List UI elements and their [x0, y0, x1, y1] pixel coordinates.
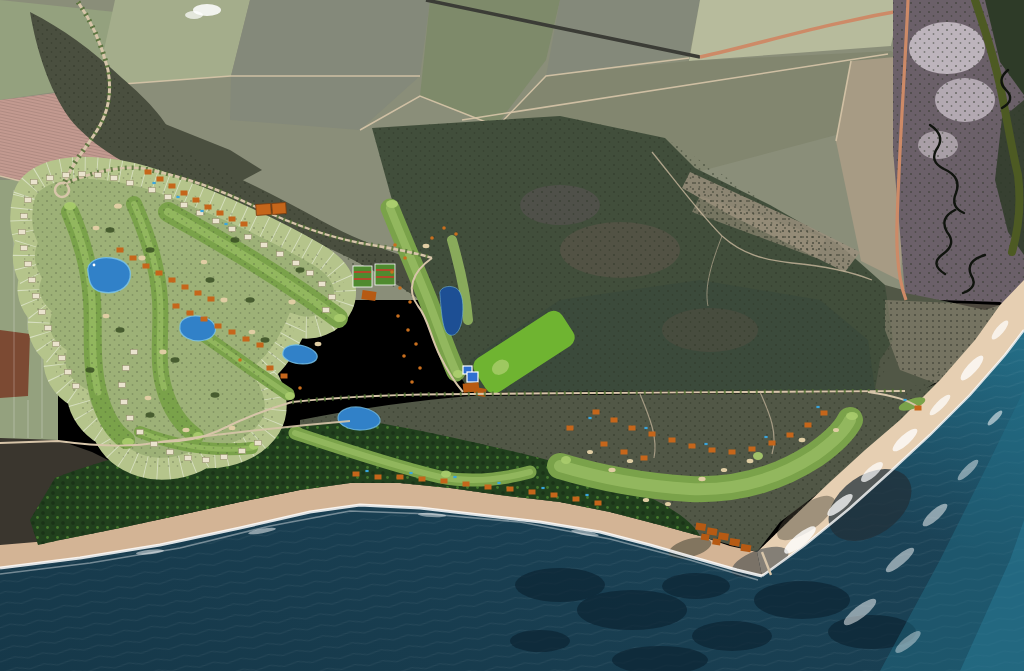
house [255, 441, 262, 446]
villa [641, 456, 648, 461]
villa [243, 337, 250, 342]
plowed-field-rust [0, 330, 30, 398]
house [73, 384, 80, 389]
house [127, 181, 134, 186]
field [96, 0, 250, 86]
resort-building [256, 203, 272, 215]
house [95, 173, 102, 178]
house [21, 246, 28, 251]
villa [193, 198, 200, 203]
house [121, 400, 128, 405]
lake [283, 345, 318, 364]
house [203, 458, 210, 463]
villa [169, 278, 176, 283]
house [33, 294, 40, 299]
pool [816, 406, 819, 408]
plot-rows [352, 252, 396, 263]
house [261, 243, 268, 248]
house [123, 366, 130, 371]
villa [595, 501, 602, 506]
house [119, 383, 126, 388]
house [19, 230, 26, 235]
pool [497, 482, 500, 484]
house [293, 261, 300, 266]
villa [375, 475, 382, 480]
villa [201, 317, 208, 322]
villa [143, 264, 150, 269]
house [307, 271, 314, 276]
resort-building [272, 203, 287, 215]
villa [601, 442, 608, 447]
pool [644, 427, 647, 429]
house [63, 173, 70, 178]
pool [764, 436, 767, 438]
villa [441, 479, 448, 484]
house [229, 227, 236, 232]
villa [205, 205, 212, 210]
villa [649, 432, 656, 437]
house [21, 214, 28, 219]
house [329, 295, 336, 300]
pool [541, 487, 544, 489]
house [213, 219, 220, 224]
house [31, 180, 38, 185]
house [319, 282, 326, 287]
villa [217, 211, 224, 216]
grid-plot [353, 266, 372, 287]
house [29, 278, 36, 283]
house [239, 449, 246, 454]
villa [215, 324, 222, 329]
villa [156, 271, 163, 276]
putting-green [386, 200, 398, 208]
villa [507, 487, 514, 492]
villa [821, 411, 828, 416]
villa [267, 366, 274, 371]
pool [409, 472, 412, 474]
villa [787, 433, 794, 438]
pool [585, 494, 588, 496]
villa [749, 447, 756, 452]
villa [241, 222, 248, 227]
house [53, 342, 60, 347]
villa [669, 438, 676, 443]
villa [729, 450, 736, 455]
aerial-map [0, 0, 1024, 671]
house [323, 308, 330, 313]
house [79, 172, 86, 177]
house [65, 370, 72, 375]
house [25, 198, 32, 203]
estuary [893, 0, 1024, 315]
pool [176, 196, 179, 198]
house [165, 195, 172, 200]
villa [709, 448, 716, 453]
villa [130, 256, 137, 261]
house [25, 262, 32, 267]
villa [169, 184, 176, 189]
villa [529, 490, 536, 495]
pool [224, 223, 227, 225]
house [151, 442, 158, 447]
pool [588, 417, 591, 419]
villa [689, 444, 696, 449]
villa [805, 423, 812, 428]
villa [182, 285, 189, 290]
villa [915, 406, 922, 411]
house [221, 455, 228, 460]
sand-bunker [423, 244, 430, 248]
house [111, 176, 118, 181]
lake [180, 316, 216, 341]
house [45, 326, 52, 331]
villa [397, 475, 404, 480]
villa [181, 191, 188, 196]
putting-green [453, 370, 463, 378]
villa [551, 493, 558, 498]
house [59, 356, 66, 361]
pool [903, 399, 906, 401]
villa [611, 418, 618, 423]
house [245, 235, 252, 240]
pool [704, 443, 707, 445]
house [149, 188, 156, 193]
villa [353, 472, 360, 477]
villa [229, 330, 236, 335]
villa [621, 450, 628, 455]
villa [229, 217, 236, 222]
clubhouse-pool [467, 372, 478, 382]
house [39, 310, 46, 315]
villa [593, 410, 600, 415]
pool [152, 182, 155, 184]
lake [88, 258, 131, 293]
pool [453, 476, 456, 478]
villa [117, 248, 124, 253]
villa [145, 170, 152, 175]
villa [573, 497, 580, 502]
house [185, 456, 192, 461]
villa [485, 485, 492, 490]
villa [567, 426, 574, 431]
beach-club-building [701, 533, 710, 540]
villa [629, 426, 636, 431]
villa [281, 374, 288, 379]
pool [200, 210, 203, 212]
pool [365, 470, 368, 472]
villa [208, 297, 215, 302]
fountain [93, 264, 96, 267]
grid-plot [375, 264, 395, 285]
house [47, 176, 54, 181]
villa [463, 482, 470, 487]
villa [769, 441, 776, 446]
house [181, 203, 188, 208]
villa [157, 177, 164, 182]
house [131, 350, 138, 355]
house [277, 252, 284, 257]
house [137, 430, 144, 435]
villa [187, 311, 194, 316]
villa [419, 477, 426, 482]
villa [257, 343, 264, 348]
villa [173, 304, 180, 309]
house [127, 416, 134, 421]
villa [195, 291, 202, 296]
beach-club-building [712, 538, 721, 545]
house [167, 450, 174, 455]
